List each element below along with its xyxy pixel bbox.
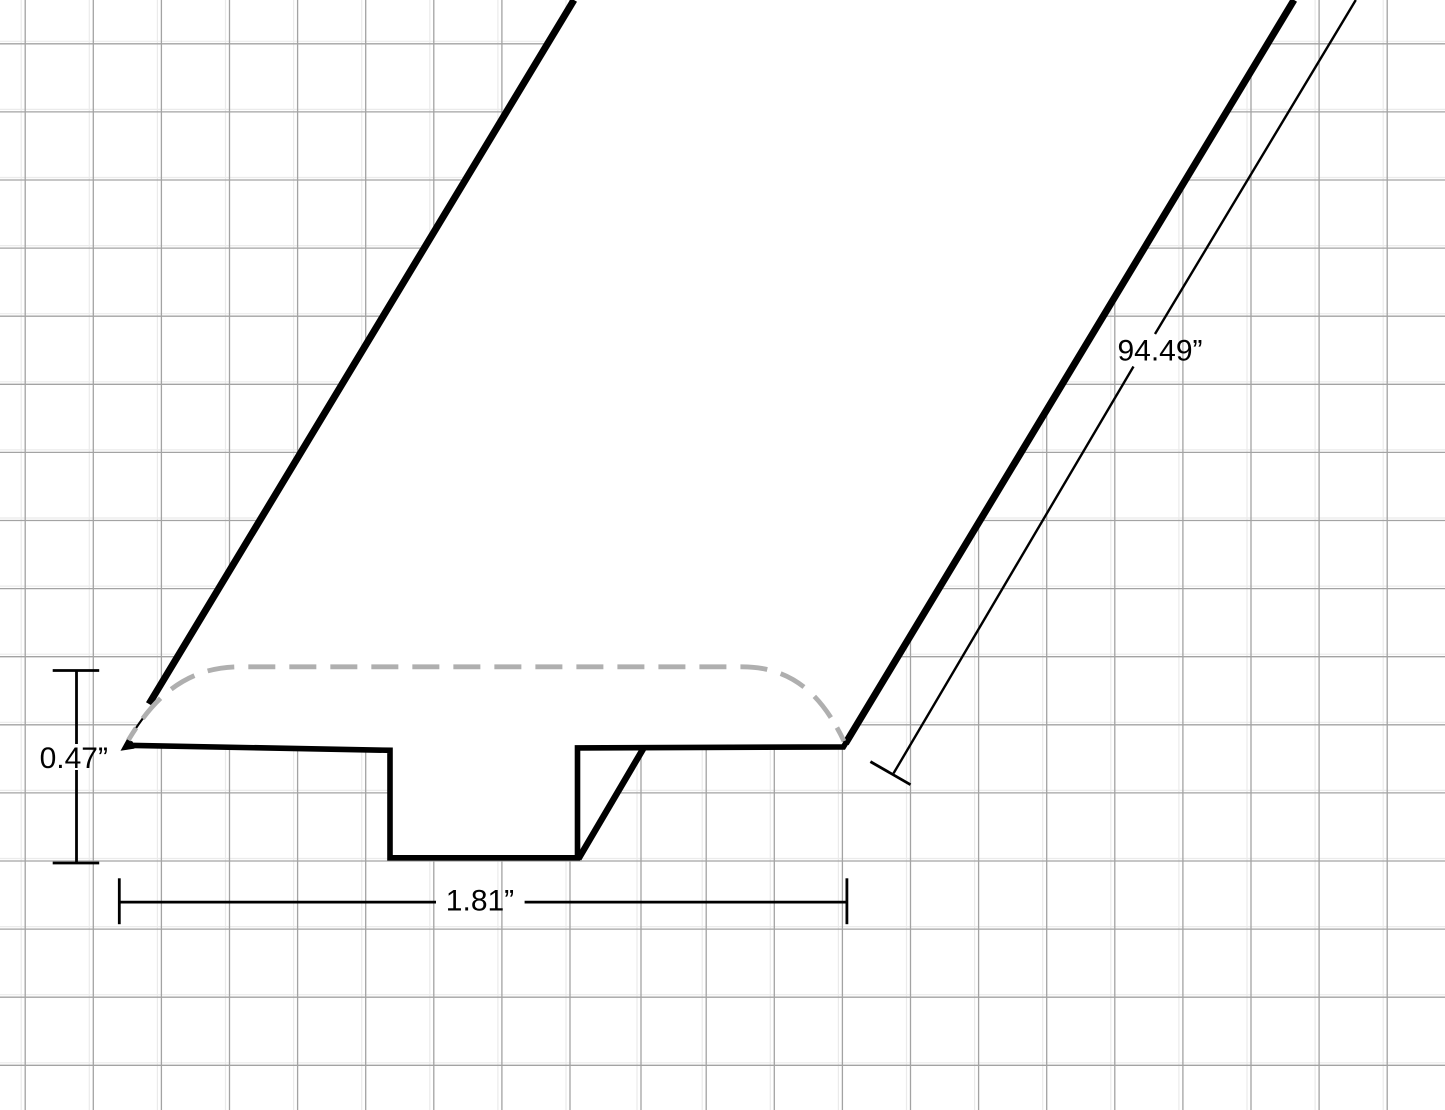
svg-text:0.47”: 0.47”	[40, 742, 108, 775]
svg-text:1.81”: 1.81”	[446, 885, 514, 918]
svg-text:94.49”: 94.49”	[1117, 335, 1202, 368]
